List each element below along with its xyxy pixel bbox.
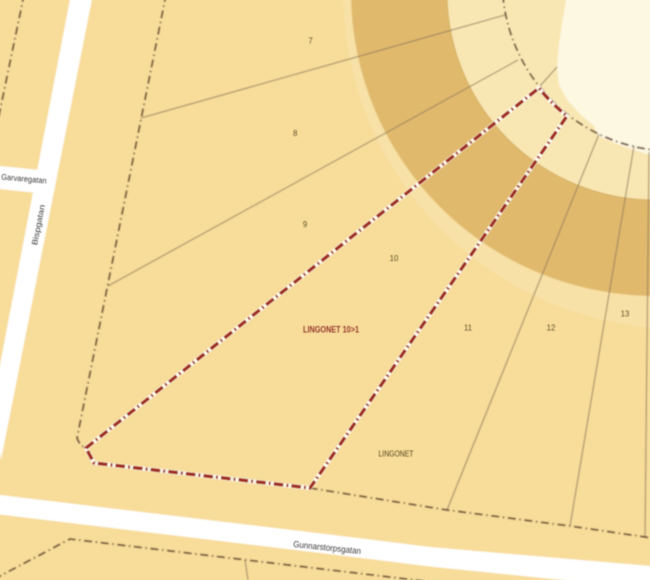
svg-text:12: 12 xyxy=(547,324,556,333)
svg-text:11: 11 xyxy=(464,324,472,333)
svg-text:13: 13 xyxy=(621,310,630,319)
svg-text:LINGONET: LINGONET xyxy=(379,449,415,459)
svg-text:LINGONET 10>1: LINGONET 10>1 xyxy=(303,325,360,336)
svg-text:8: 8 xyxy=(293,129,297,138)
svg-text:7: 7 xyxy=(308,37,312,46)
svg-text:9: 9 xyxy=(303,220,307,229)
svg-text:10: 10 xyxy=(390,254,399,263)
